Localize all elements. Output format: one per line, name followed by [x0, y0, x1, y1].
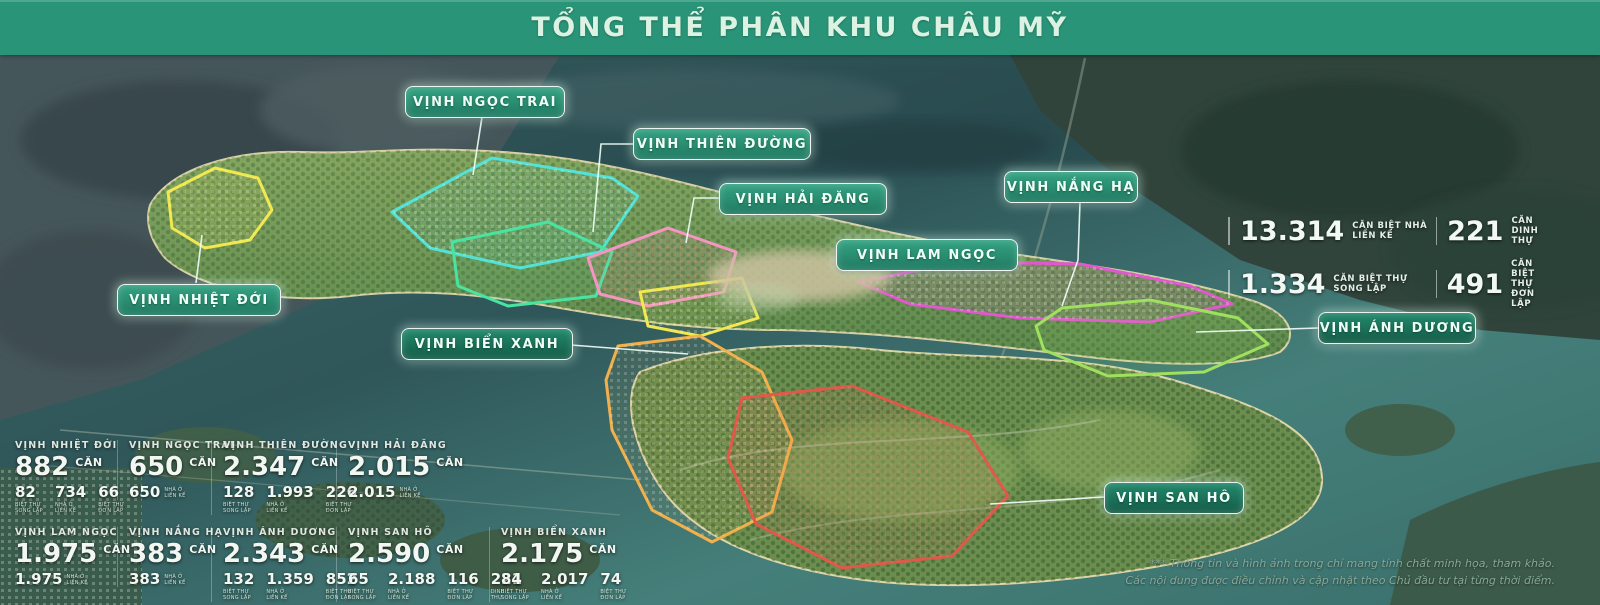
zone-stat-total: 2.175: [501, 541, 583, 567]
zone-stat-name: VỊNH BIỂN XANH: [501, 527, 627, 538]
zone-stat-part: 116BIỆT THỰĐƠN LẬP: [447, 572, 478, 602]
zone-stat-unit: CĂN: [311, 456, 338, 469]
zone-pill-bien-xanh: VỊNH BIỂN XANH: [401, 328, 573, 360]
overview-breakdown: 13.314 CĂN BIỆT NHÀ LIỀN KẾ 221 CĂN DINH…: [1228, 216, 1539, 310]
header-bar: TỔNG THỂ PHÂN KHU CHÂU MỸ: [0, 0, 1600, 55]
zone-stat-unit: CĂN: [436, 543, 463, 556]
breakdown-label: CĂN BIỆT NHÀ LIỀN KẾ: [1352, 221, 1427, 241]
breakdown-value: 1.334: [1240, 271, 1325, 298]
breakdown-value: 491: [1447, 271, 1503, 298]
zone-stat-part: 2.188NHÀ ỞLIỀN KẾ: [388, 572, 435, 602]
zone-stat-part: 1.975NHÀ ỞLIỀN KẾ: [15, 572, 88, 587]
zone-pill-anh-duong: VỊNH ÁNH DƯƠNG: [1318, 312, 1476, 344]
zone-stat-unit: CĂN: [311, 543, 338, 556]
disclaimer-line: Các nội dung được điều chỉnh và cập nhật…: [1126, 573, 1555, 590]
breakdown-value: 13.314: [1240, 218, 1344, 245]
page-title: TỔNG THỂ PHÂN KHU CHÂU MỸ: [531, 12, 1068, 43]
stat-divider: [1436, 217, 1437, 245]
disclaimer: *** Thông tin và hình ảnh trong chỉ mang…: [1126, 556, 1555, 589]
zone-stat-part: 84BIỆT THỰSONG LẬP: [501, 572, 529, 602]
zone-stat-name: VỊNH NẮNG HẠ: [129, 527, 223, 538]
breakdown-value: 221: [1447, 218, 1503, 245]
zone-stat-part: 383NHÀ ỞLIỀN KẾ: [129, 572, 186, 587]
stat-divider: [1228, 270, 1230, 298]
zone-stat-unit: CĂN: [75, 456, 102, 469]
zone-stat-total: 650: [129, 454, 183, 480]
breakdown-item: 221 CĂN DINH THỰ: [1436, 216, 1539, 247]
zone-stat-unit: CĂN: [589, 543, 616, 556]
zone-stat-part: 82BIỆT THỰSONG LẬP: [15, 485, 43, 515]
breakdown-label: CĂN BIỆT THỰ ĐƠN LẬP: [1511, 259, 1539, 310]
zone-stat-total: 882: [15, 454, 69, 480]
zone-stat-total: 2.347: [223, 454, 305, 480]
zone-stat-nang-ha: VỊNH NẮNG HẠ 383CĂN 383NHÀ ỞLIỀN KẾ: [117, 527, 223, 587]
zone-stat-name: VỊNH HẢI ĐĂNG: [348, 440, 464, 451]
zone-stat-total: 2.343: [223, 541, 305, 567]
zone-stat-part: 65BIỆT THỰSONG LẬP: [348, 572, 376, 602]
header-topline: [0, 0, 1600, 2]
zone-stat-name: VỊNH NHIỆT ĐỚI: [15, 440, 124, 451]
zone-pill-san-ho: VỊNH SAN HÔ: [1104, 482, 1244, 514]
disclaimer-line: *** Thông tin và hình ảnh trong chỉ mang…: [1126, 556, 1555, 573]
breakdown-label: CĂN BIỆT THỰ SONG LẬP: [1333, 274, 1407, 294]
zone-pill-hai-dang: VỊNH HẢI ĐĂNG: [719, 183, 887, 215]
stat-divider: [1436, 270, 1437, 298]
zone-stat-part: 132BIỆT THỰSONG LẬP: [223, 572, 254, 602]
zone-pill-nhiet-doi: VỊNH NHIỆT ĐỚI: [117, 284, 281, 316]
zone-stat-part: 2.017NHÀ ỞLIỀN KẾ: [541, 572, 588, 602]
zone-stat-name: VỊNH LAM NGỌC: [15, 527, 131, 538]
zone-pill-ngoc-trai: VỊNH NGỌC TRAI: [405, 86, 565, 118]
breakdown-item: 1.334 CĂN BIỆT THỰ SONG LẬP: [1228, 259, 1436, 310]
zone-pill-thien-duong: VỊNH THIÊN ĐƯỜNG: [633, 128, 811, 160]
zone-pill-lam-ngoc: VỊNH LAM NGỌC: [836, 239, 1018, 271]
zone-stat-total: 2.015: [348, 454, 430, 480]
zone-stat-part: 74BIỆT THỰĐƠN LẬP: [600, 572, 626, 602]
stat-divider: [1228, 217, 1230, 245]
zone-stat-total: 2.590: [348, 541, 430, 567]
zone-stat-part: 128BIỆT THỰSONG LẬP: [223, 485, 254, 515]
zone-stat-part: 2.015NHÀ ỞLIỀN KẾ: [348, 485, 421, 500]
zone-stat-lam-ngoc: VỊNH LAM NGỌC 1.975CĂN 1.975NHÀ ỞLIỀN KẾ: [15, 527, 131, 587]
zone-stat-nhiet-doi: VỊNH NHIỆT ĐỚI 882CĂN 82BIỆT THỰSONG LẬP…: [15, 440, 124, 515]
breakdown-label: CĂN DINH THỰ: [1511, 216, 1539, 247]
zone-stat-part: 1.359NHÀ ỞLIỀN KẾ: [266, 572, 313, 602]
zone-stat-part: 1.993NHÀ ỞLIỀN KẾ: [266, 485, 313, 515]
zone-stat-part: 650NHÀ ỞLIỀN KẾ: [129, 485, 186, 500]
zone-stat-part: 734NHÀ ỞLIỀN KẾ: [55, 485, 86, 515]
zone-stat-total: 1.975: [15, 541, 97, 567]
breakdown-item: 13.314 CĂN BIỆT NHÀ LIỀN KẾ: [1228, 216, 1436, 247]
breakdown-item: 491 CĂN BIỆT THỰ ĐƠN LẬP: [1436, 259, 1539, 310]
zone-stat-hai-dang: VỊNH HẢI ĐĂNG 2.015CĂN 2.015NHÀ ỞLIỀN KẾ: [336, 440, 464, 500]
zone-stat-bien-xanh: VỊNH BIỂN XANH 2.175CĂN 84BIỆT THỰSONG L…: [489, 527, 627, 602]
zone-pill-nang-ha: VỊNH NẮNG HẠ: [1004, 171, 1138, 203]
zone-stat-total: 383: [129, 541, 183, 567]
zone-stat-unit: CĂN: [436, 456, 463, 469]
